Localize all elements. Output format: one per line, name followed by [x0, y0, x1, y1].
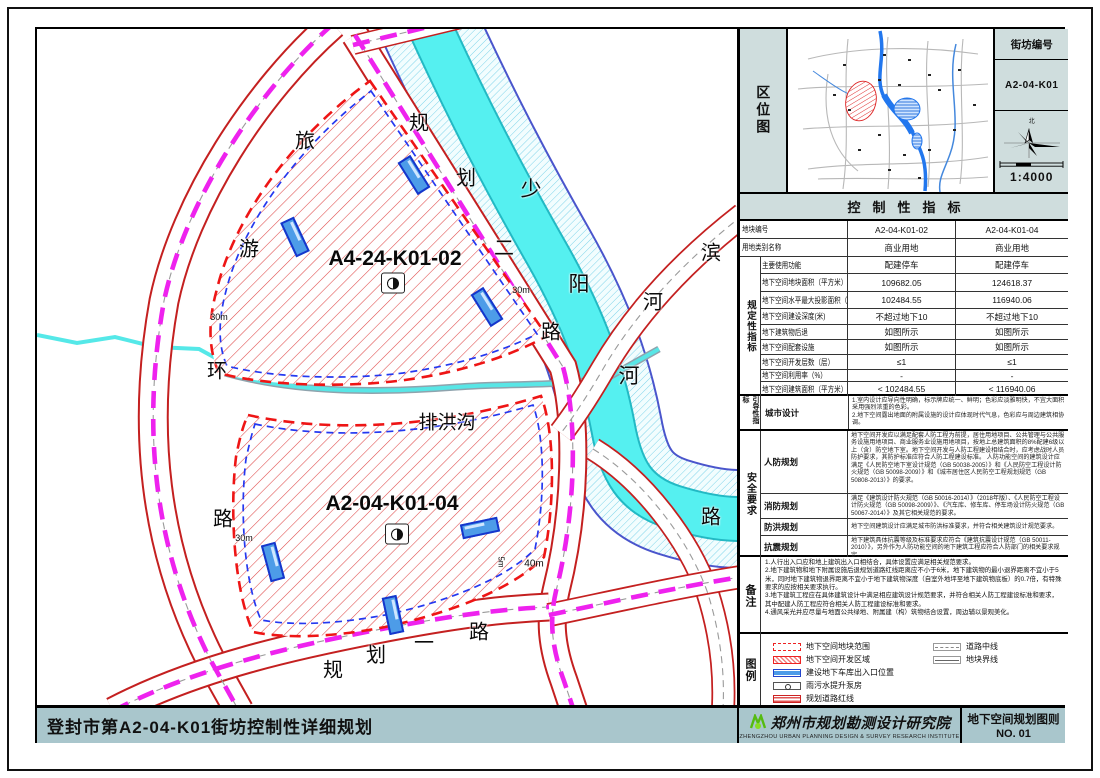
row-label: 地下空间水平最大投影面积（平方米）	[762, 295, 848, 306]
table-row: 地下空间水平最大投影面积（平方米） 102484.55 116940.06	[760, 292, 1068, 309]
garage-entrance-symbol	[773, 669, 801, 677]
row-label: 地下空间建筑面积（平方米）	[762, 384, 847, 395]
row-value-2: 配建停车	[956, 257, 1068, 273]
block-number-column: 街坊编号 A2-04-K01 北	[995, 29, 1068, 192]
row-value-1: -	[848, 370, 956, 381]
row-value-1: < 102484.55	[848, 382, 956, 396]
road-centerline-symbol	[933, 643, 961, 651]
row-value-1: ≤1	[848, 355, 956, 369]
sheet-number: NO. 01	[996, 728, 1031, 740]
control-indicators-header: 控制性指标	[740, 194, 1068, 221]
road-redline-symbol	[773, 695, 801, 703]
table-row: 地下空间开发层数（层） ≤1 ≤1	[760, 355, 1068, 370]
legend-item: 建设地下车库出入口位置	[773, 666, 894, 679]
row-value-1: 商业用地	[848, 239, 956, 256]
row-value-2: A2-04-K01-04	[956, 221, 1068, 238]
safety-row: 防洪规划 地下空间建筑设计应满足城市防洪标准要求，并符合相关建筑设计规范要求。	[760, 519, 1068, 536]
compass-scale-cell: 北 1:4000	[995, 111, 1068, 192]
row-value-2: 116940.06	[956, 292, 1068, 308]
row-value-2: 如图所示	[956, 340, 1068, 354]
notes-group-label: 备注	[740, 557, 761, 634]
map-canvas	[37, 29, 737, 705]
drawing-title: 登封市第A2-04-K01街坊控制性详细规划	[37, 708, 737, 743]
location-map-title: 区位图	[753, 85, 773, 136]
row-value-1: 109682.05	[848, 274, 956, 291]
legend-section: 图例 地下空间地块范围 地下空间开发区域 建设地下车库出入口位置 雨污水	[740, 634, 1068, 705]
scale-bar	[999, 161, 1065, 169]
regulatory-group-label: 规定性指标	[740, 257, 761, 396]
minimap-current-block	[842, 78, 881, 124]
parcel-range-symbol	[773, 643, 801, 651]
regulatory-group-text: 规定性指标	[743, 300, 757, 353]
fire-plan-text: 满足《建筑设计防火规范（GB 50016-2014）》（2018年版）、《人民防…	[848, 494, 1068, 518]
legend-label: 地块界线	[966, 654, 998, 665]
row-value-2: < 116940.06	[956, 382, 1068, 396]
legend-group-text: 图例	[742, 658, 758, 682]
row-label: 地块编号	[742, 224, 768, 235]
plan-map: 旅游环路规划二路少阳河滨河路排洪沟规划一路A4-24-K01-02A2-04-K…	[37, 29, 737, 705]
legend-label: 规划道路红线	[806, 693, 854, 704]
note-item: 2.地下建筑物和地下附属设施后退规划道路红线距离应不小于6米，地下建筑物的最小退…	[765, 567, 1064, 592]
legend-item: 地下空间地块范围	[773, 640, 894, 653]
block-number-value: A2-04-K01	[995, 60, 1068, 111]
row-value-1: 102484.55	[848, 292, 956, 308]
title-bar: 登封市第A2-04-K01街坊控制性详细规划 郑州市规划勘测设计研究院 ZHEN…	[37, 705, 1065, 743]
legend-item: 地块界线	[933, 653, 998, 666]
urban-design-text: 1.室内设计应导向性明确，标示牌应统一、鲜明；色彩应淡雅明快，不宜大面积采用强烈…	[849, 396, 1068, 429]
block-number-header: 街坊编号	[995, 29, 1068, 60]
minimap-roads	[798, 37, 988, 189]
urban-design-text-1: 1.室内设计应导向性明确，标示牌应统一、鲜明；色彩应淡雅明快，不宜大面积采用强烈…	[852, 397, 1065, 412]
row-value-1: 如图所示	[848, 340, 956, 354]
row-value-1: 如图所示	[848, 325, 956, 339]
indicator-panel: 区位图	[737, 29, 1065, 705]
safety-row: 人防规划 地下空间开发应以满足配套人防工程为前提，居住用地项目、公共管理与公共服…	[760, 431, 1068, 494]
table-row: 地下空间配套设施 如图所示 如图所示	[760, 340, 1068, 355]
table-row: 地下空间建筑面积（平方米） < 102484.55 < 116940.06	[760, 382, 1068, 396]
north-label: 北	[1029, 119, 1035, 125]
parcel-boundary-symbol	[933, 656, 961, 664]
civil-defense-label: 人防规划	[760, 431, 848, 493]
safety-group-text: 安全要求	[743, 472, 758, 516]
table-row: 地下空间利用率（%） - -	[760, 370, 1068, 382]
row-value-2: ≤1	[956, 355, 1068, 369]
safety-section: 安全要求 人防规划 地下空间开发应以满足配套人防工程为前提，居住用地项目、公共管…	[740, 431, 1068, 557]
row-value-1: 不超过地下10	[848, 309, 956, 324]
north-arrow-icon	[1001, 126, 1063, 160]
safety-row: 消防规划 满足《建筑设计防火规范（GB 50016-2014）》（2018年版）…	[760, 494, 1068, 519]
row-value-2: 124618.37	[956, 274, 1068, 291]
legend-label: 地下空间开发区域	[806, 654, 870, 665]
legend-item: 雨污水提升泵房	[773, 679, 894, 692]
table-row: 主要使用功能 配建停车 配建停车	[760, 257, 1068, 274]
row-label: 地下建筑物后退	[762, 327, 808, 338]
location-minimap	[788, 29, 995, 192]
guide-indicator-section: 引导性指标 城市设计 1.室内设计应导向性明确，标示牌应统一、鲜明；色彩应淡雅明…	[740, 396, 1068, 431]
table-row: 用地类别名称 商业用地 商业用地	[740, 239, 1068, 257]
note-item: 3.地下建筑工程应在具体建筑设计中满足相应建筑设计规范要求，并符合相关人防工程建…	[765, 592, 1064, 609]
civil-defense-text: 地下空间开发应以满足配套人防工程为前提，居住用地项目、公共管理与公共服务设施用地…	[848, 431, 1068, 493]
row-value-1: 配建停车	[848, 257, 956, 273]
guide-group-label: 引导性指标	[740, 396, 761, 429]
table-row: 地下建筑物后退 如图所示 如图所示	[760, 325, 1068, 340]
row-value-2: 不超过地下10	[956, 309, 1068, 324]
urban-design-text-2: 2.地下空间露出地面的附属设施的设计应体现时代气息，色彩应与周边建筑相协调。	[852, 412, 1065, 427]
row-value-2: 如图所示	[956, 325, 1068, 339]
row-label: 用地类别名称	[742, 242, 781, 253]
legend-label: 地下空间地块范围	[806, 641, 870, 652]
row-label: 地下空间利用率（%）	[762, 370, 827, 381]
row-label: 地下空间开发层数（层）	[762, 357, 834, 368]
location-section: 区位图	[740, 29, 1068, 194]
row-label: 地下空间建设深度(米)	[762, 311, 825, 322]
seismic-plan-label: 抗震规划	[760, 536, 848, 557]
notes-group-text: 备注	[742, 584, 758, 608]
table-row: 地下空间建设深度(米) 不超过地下10 不超过地下10	[760, 309, 1068, 325]
note-item: 4.通风采光井应尽量与地面公共绿地、附属建（构）筑物结合设置，周边辅以景观美化。	[765, 609, 1064, 617]
row-label: 主要使用功能	[762, 260, 801, 271]
development-area-symbol	[773, 656, 801, 664]
safety-group-label: 安全要求	[740, 431, 761, 557]
table-row: 地块编号 A2-04-K01-02 A2-04-K01-04	[740, 221, 1068, 239]
legend-item: 规划道路红线	[773, 692, 894, 705]
sheet-name: 地下空间规划图则	[968, 711, 1060, 727]
guide-group-text: 引导性指标	[740, 396, 760, 429]
indicator-table: 规定性指标 地块编号 A2-04-K01-02 A2-04-K01-04 用地类…	[740, 221, 1068, 396]
seismic-plan-text: 地下建筑具体抗震等级及标准要求应符合《建筑抗震设计规范（GB 50011-201…	[848, 536, 1068, 557]
row-label: 地下空间配套设施	[762, 342, 814, 353]
legend-content: 地下空间地块范围 地下空间开发区域 建设地下车库出入口位置 雨污水提升泵房 规划…	[760, 634, 1068, 705]
institute-name: 郑州市规划勘测设计研究院	[771, 712, 951, 733]
location-map-side-label: 区位图	[740, 29, 788, 192]
row-value-1: A2-04-K01-02	[848, 221, 956, 238]
legend-label: 建设地下车库出入口位置	[806, 667, 894, 678]
table-row: 地下空间地块面积（平方米） 109682.05 124618.37	[760, 274, 1068, 292]
row-value-2: -	[956, 370, 1068, 381]
notes-text: 1.人行出入口应和地上建筑出入口相结合，具体设置应满足相关规范要求。 2.地下建…	[761, 557, 1068, 632]
flood-plan-label: 防洪规划	[760, 519, 848, 535]
notes-section: 备注 1.人行出入口应和地上建筑出入口相结合，具体设置应满足相关规范要求。 2.…	[740, 557, 1068, 634]
legend-group-label: 图例	[740, 634, 760, 705]
fire-plan-label: 消防规划	[760, 494, 848, 518]
row-value-2: 商业用地	[956, 239, 1068, 256]
scale-text: 1:4000	[1010, 170, 1053, 184]
institute-logo-icon	[749, 714, 767, 730]
flood-plan-text: 地下空间建筑设计应满足城市防洪标准要求，并符合相关建筑设计规范要求。	[848, 519, 1068, 535]
legend-label: 雨污水提升泵房	[806, 680, 862, 691]
pump-station-symbol	[773, 682, 801, 690]
institute-name-en: ZHENGZHOU URBAN PLANNING DESIGN & SURVEY…	[739, 734, 959, 740]
safety-row: 抗震规划 地下建筑具体抗震等级及标准要求应符合《建筑抗震设计规范（GB 5001…	[760, 536, 1068, 557]
legend-label: 道路中线	[966, 641, 998, 652]
legend-item: 道路中线	[933, 640, 998, 653]
legend-item: 地下空间开发区域	[773, 653, 894, 666]
institute-cell: 郑州市规划勘测设计研究院 ZHENGZHOU URBAN PLANNING DE…	[737, 708, 960, 743]
sheet-number-cell: 地下空间规划图则 NO. 01	[960, 708, 1065, 743]
urban-design-label: 城市设计	[761, 396, 849, 429]
row-label: 地下空间地块面积（平方米）	[762, 277, 847, 288]
